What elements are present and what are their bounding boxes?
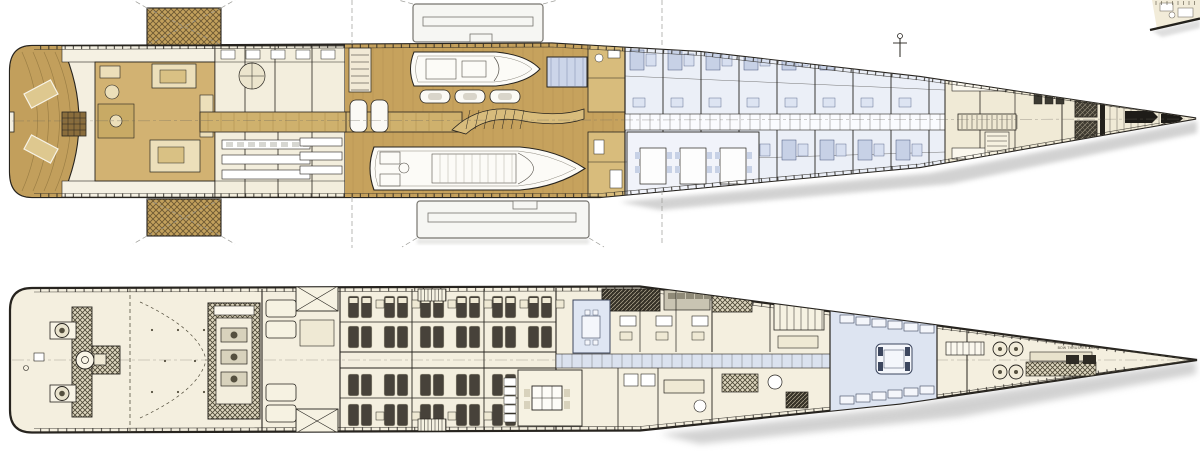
office-chair <box>620 332 632 340</box>
shell-door-shadow <box>417 239 589 244</box>
dining-chair <box>524 401 530 409</box>
winch-drum <box>59 328 65 334</box>
sink-fixture <box>608 50 620 58</box>
mess-chair <box>747 152 752 159</box>
crew-bed <box>836 54 846 66</box>
galley-counter <box>300 166 342 174</box>
winch-drum <box>59 391 65 397</box>
jetski-seat <box>463 93 477 100</box>
crew-berth <box>384 374 395 396</box>
machinery-bar <box>1030 352 1092 361</box>
lounge-chair <box>593 310 598 315</box>
steering-quadrant <box>76 351 94 369</box>
galley-counter <box>300 138 342 146</box>
rack-unit <box>856 394 870 402</box>
deck-dot <box>177 391 179 393</box>
rack-unit <box>920 325 934 333</box>
mast-symbol <box>898 34 903 39</box>
crew-berth <box>492 374 503 396</box>
wardrobe <box>448 412 456 420</box>
crew-berth <box>492 326 503 348</box>
bunk <box>778 336 818 348</box>
berth-pillow <box>386 298 394 303</box>
salon-table <box>160 70 186 83</box>
crew-bed <box>722 54 732 66</box>
galley-appliance <box>270 142 277 147</box>
shell-door-open <box>417 201 589 238</box>
crew-bed <box>874 144 884 156</box>
cabinet-fixture <box>271 50 285 59</box>
tank <box>266 321 296 338</box>
crew-berth <box>420 374 431 396</box>
lounge-chair <box>585 340 590 345</box>
fragment-fixture <box>1160 3 1173 11</box>
ensuite-fixture <box>785 98 797 107</box>
berth-pillow <box>471 298 479 303</box>
salon-round-table <box>105 85 119 99</box>
crew-berth <box>433 374 444 396</box>
wardrobe <box>556 300 564 308</box>
salon-chair <box>100 66 120 78</box>
adjacent-plan-fragment <box>1150 0 1200 37</box>
berth-pillow <box>458 298 466 303</box>
mess-table <box>640 148 666 184</box>
dining-chair <box>504 387 516 395</box>
crew-bed <box>912 144 922 156</box>
appliance <box>677 293 685 299</box>
crew-berth <box>384 404 395 426</box>
galley-block <box>602 289 660 311</box>
mess-table <box>720 148 746 184</box>
laundry-machine <box>641 374 655 386</box>
lower-corridor <box>556 354 830 368</box>
crew-berth <box>456 404 467 426</box>
berth-pillow <box>543 298 551 303</box>
deck-dot <box>203 329 205 331</box>
crew-bed <box>874 54 884 66</box>
rack-unit <box>920 386 934 394</box>
hatched-floor-plate <box>1026 362 1096 376</box>
office-desk <box>620 316 636 326</box>
berth-pillow <box>363 298 371 303</box>
projection-line <box>398 0 413 4</box>
ensuite-fixture <box>899 98 911 107</box>
dining-chair <box>564 389 570 397</box>
mess-chair <box>707 152 712 159</box>
wardrobe <box>520 300 528 308</box>
windlass-arrow <box>1125 111 1158 123</box>
main-deck-plan <box>2 0 1200 248</box>
appliance <box>704 293 712 299</box>
projection-line <box>402 238 417 247</box>
tank <box>266 405 296 422</box>
dining-chair <box>524 389 530 397</box>
crew-bed <box>896 140 910 160</box>
cabinet-fixture <box>221 50 235 59</box>
rack-unit <box>840 396 854 404</box>
mess-table <box>680 148 706 184</box>
crew-berth <box>505 326 516 348</box>
crew-berth <box>348 326 359 348</box>
cabinet-fixture <box>246 50 260 59</box>
crew-berth <box>384 326 395 348</box>
office-desk <box>692 316 708 326</box>
dining-chair <box>504 414 516 422</box>
ensuite-fixture <box>747 98 759 107</box>
deck-dot <box>151 329 153 331</box>
appliance <box>668 293 676 299</box>
sofa <box>664 380 704 393</box>
gear-box <box>34 353 44 361</box>
office-desk <box>656 316 672 326</box>
galley-counter <box>222 170 310 179</box>
crew-bed <box>782 140 796 160</box>
rack-unit <box>904 388 918 396</box>
crew-berth <box>420 326 431 348</box>
pump-box <box>1083 355 1096 364</box>
tank-dot <box>1014 370 1018 374</box>
crew-bed <box>858 50 872 70</box>
wardrobe <box>376 412 384 420</box>
laundry-machine <box>624 374 638 386</box>
galley-appliance <box>248 142 255 147</box>
crew-berth <box>397 374 408 396</box>
tender-chock <box>878 362 883 371</box>
lounge-chair <box>593 340 598 345</box>
deck-dot <box>177 329 179 331</box>
hatched-store <box>722 374 758 392</box>
crew-bed <box>630 50 644 70</box>
galley-counter <box>300 152 342 160</box>
wc-fixture <box>594 140 604 154</box>
crew-bed <box>912 54 922 66</box>
crew-berth <box>469 374 480 396</box>
rack-unit <box>904 323 918 331</box>
galley-appliance <box>237 142 244 147</box>
crew-bed <box>896 50 910 70</box>
shell-door-notch <box>513 201 537 209</box>
cabinet-fixture <box>296 50 310 59</box>
dining-chair <box>564 401 570 409</box>
tank-dot <box>998 347 1002 351</box>
tender-chock <box>905 347 910 356</box>
jetski <box>371 100 388 132</box>
projection-line <box>543 0 558 4</box>
galley-appliance <box>259 142 266 147</box>
deck-dot <box>164 360 166 362</box>
ensuite-fixture <box>823 98 835 107</box>
tender-boat-small <box>411 52 541 86</box>
ensuite-fixture <box>861 98 873 107</box>
berth-pillow <box>507 298 515 303</box>
jetski-seat <box>428 93 442 100</box>
crew-bed <box>858 140 872 160</box>
mess-chair <box>707 166 712 173</box>
rack-unit <box>872 319 886 327</box>
galley-appliance <box>292 142 299 147</box>
wardrobe <box>376 300 384 308</box>
mess-chair <box>675 152 680 159</box>
tank-dot <box>1014 347 1018 351</box>
jetski <box>350 100 367 132</box>
mess-chair <box>747 166 752 173</box>
crew-berth <box>469 404 480 426</box>
tender-chock <box>878 347 883 356</box>
console <box>214 306 254 315</box>
fragment-fixture <box>1178 8 1193 17</box>
machinery-dot <box>231 332 238 339</box>
galley-counter <box>222 155 310 164</box>
round-table <box>694 400 706 412</box>
mess-chair <box>667 166 672 173</box>
mess-chair <box>715 166 720 173</box>
rack-unit <box>840 315 854 323</box>
crew-berth <box>433 326 444 348</box>
machinery-dot <box>231 376 238 383</box>
crew-bed <box>782 50 796 70</box>
crew-berth <box>361 326 372 348</box>
wardrobe <box>484 412 492 420</box>
crew-berth <box>397 326 408 348</box>
crew-bed <box>798 144 808 156</box>
aux-hatch <box>300 320 334 346</box>
tank <box>266 384 296 401</box>
deck-plan-drawing: BOW THRUSTER AREA <box>0 0 1200 471</box>
wardrobe <box>448 300 456 308</box>
tender-chock <box>905 362 910 371</box>
galley-appliance <box>226 142 233 147</box>
office-chair <box>692 332 704 340</box>
mess-chair <box>675 166 680 173</box>
crew-berth <box>469 326 480 348</box>
office-chair <box>656 332 668 340</box>
ensuite-fixture <box>671 98 683 107</box>
crew-berth <box>361 374 372 396</box>
crew-berth <box>456 326 467 348</box>
tender-boat-large <box>370 147 585 190</box>
round-table <box>768 375 782 389</box>
berth-pillow <box>350 298 358 303</box>
berth-pillow <box>494 298 502 303</box>
crew-bed <box>744 50 758 70</box>
projection-line <box>589 238 604 247</box>
projection-line <box>133 0 147 8</box>
main-deck-plan-interior <box>2 42 1200 198</box>
galley-appliance <box>281 142 288 147</box>
rack-unit <box>856 317 870 325</box>
projection-line <box>133 236 147 244</box>
crew-bed <box>646 54 656 66</box>
swim-platform <box>2 112 14 132</box>
berth-pillow <box>399 298 407 303</box>
tank <box>266 300 296 317</box>
projection-line <box>221 236 235 244</box>
shell-door-notch <box>470 34 492 42</box>
crew-berth <box>361 404 372 426</box>
crew-bed <box>820 140 834 160</box>
dining-chair <box>504 378 516 386</box>
crew-berth <box>348 374 359 396</box>
ensuite-fixture <box>633 98 645 107</box>
gear-box <box>94 354 106 365</box>
crew-berth <box>456 374 467 396</box>
jetski-seat <box>498 93 512 100</box>
deck-dot <box>151 391 153 393</box>
dining-chair <box>504 396 516 404</box>
berth-pillow <box>530 298 538 303</box>
mess-chair <box>635 166 640 173</box>
deck-dot <box>194 360 196 362</box>
cabinet-fixture <box>321 50 335 59</box>
tank-dot <box>998 370 1002 374</box>
crew-berth <box>541 326 552 348</box>
locker-fixture <box>610 170 622 188</box>
storage-rack <box>349 48 371 92</box>
machinery-console <box>946 342 984 355</box>
mess-chair <box>635 152 640 159</box>
crew-bed <box>760 144 770 156</box>
machinery-dot <box>231 354 238 361</box>
crew-bed <box>684 54 694 66</box>
lower-deck-plan: BOW THRUSTER AREA <box>10 286 1197 444</box>
ensuite-fixture <box>709 98 721 107</box>
mess-chair <box>715 152 720 159</box>
lounge-table <box>582 316 600 338</box>
mess-chair <box>667 152 672 159</box>
dining-chair <box>504 405 516 413</box>
wardrobe <box>484 300 492 308</box>
salon-table <box>158 147 184 163</box>
fragment-fixture <box>1169 12 1175 18</box>
appliance <box>686 293 694 299</box>
rack-unit <box>888 390 902 398</box>
projection-line <box>221 0 235 8</box>
crew-berth <box>397 404 408 426</box>
crew-berth <box>348 404 359 426</box>
rack-unit <box>872 392 886 400</box>
crew-bed <box>836 144 846 156</box>
rack-unit <box>888 321 902 329</box>
yacht-general-arrangement: BOW THRUSTER AREA <box>0 0 1200 471</box>
pump-box <box>1066 355 1079 364</box>
bow-thruster-label: BOW THRUSTER AREA <box>1058 346 1099 350</box>
wc-fixture <box>595 54 603 62</box>
lounge-chair <box>585 310 590 315</box>
hatched-store <box>786 392 808 408</box>
deck-dot <box>203 391 205 393</box>
crew-berth <box>492 404 503 426</box>
cold-room <box>712 292 752 312</box>
crew-berth <box>528 326 539 348</box>
